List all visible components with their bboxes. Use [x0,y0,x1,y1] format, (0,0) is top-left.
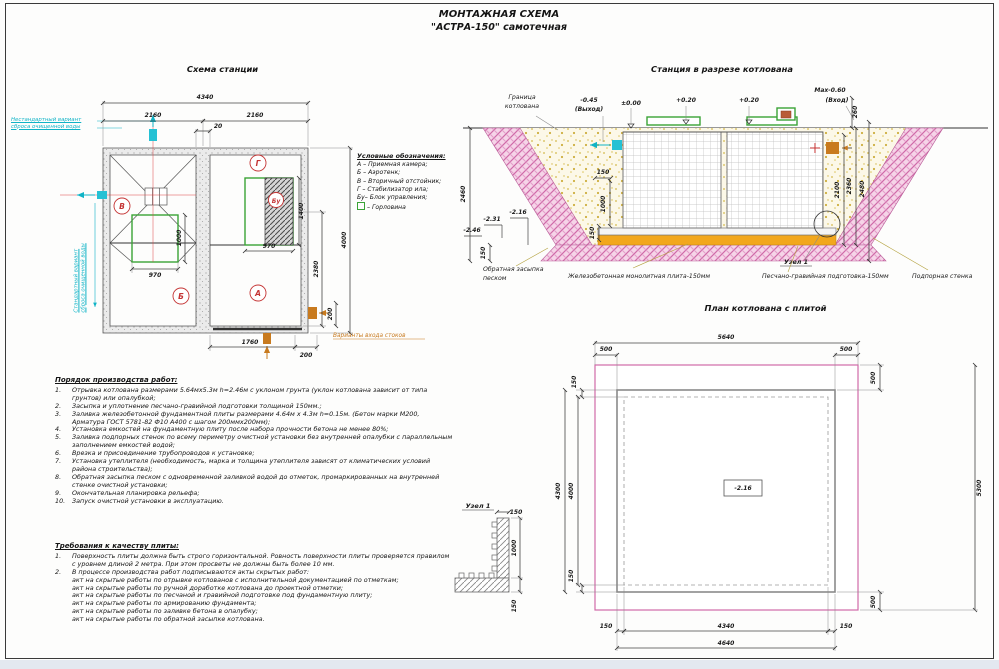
vent-block [781,111,791,118]
dim-2100: 2100 [834,182,841,199]
mark-m246: -2.46 [463,227,480,234]
list-item: 3.Заливка железобетонной фундаментной пл… [55,411,453,427]
dim-4340-b: 4340 [718,623,735,630]
station-scheme-heading: Схема станции [130,64,315,74]
pit-boundary-label-1: Граница [508,94,535,101]
item-text: Обратная засыпка песком с одновременной … [72,474,453,490]
label-chamber-a: А [254,289,261,298]
dim-200-right: 200 [327,308,334,321]
quality-requirements: Требования к качеству плиты: 1.Поверхнос… [55,543,453,624]
outlet-pipe [612,140,622,150]
station-scheme-drawing: В Б Г А Бу 4340 2160 2160 20 970 1000 97… [0,85,450,380]
label-chamber-v: В [119,202,125,211]
slab-label: Железобетонная монолитная плита-150мм [567,272,710,280]
dim-1000: 1000 [176,230,183,247]
pit-plan-drawing: -2.16 5640 500 500 150 500 4300 4000 150… [548,318,998,668]
dim-4000: 4000 [341,232,348,249]
mark-max: Max-0.60 [814,87,845,94]
item-text: Отрывка котлована размерами 5.64мх5.3м h… [72,387,453,403]
retaining-wall-bottom [541,245,886,261]
retaining-wall-label: Подпорная стенка [912,273,973,280]
dim-150c: 150 [480,247,487,260]
covers [647,108,797,125]
item-number: 7. [55,458,72,474]
dim-260: 260 [852,106,859,119]
plan-heading: План котлована с плитой [648,303,883,313]
outlet-stub-top [149,129,157,141]
work-order-list: Порядок производства работ: 1.Отрывка ко… [55,377,453,506]
dim-2480: 2480 [859,181,866,198]
item-number: 5. [55,434,72,450]
list-item: 7.Установка утеплителя (необходимость, м… [55,458,453,474]
item-number: 1. [55,553,72,569]
dim-150-lb: 150 [568,570,575,583]
concrete-slab [598,228,836,235]
label-control-unit: Бу [272,198,282,205]
sheet-title-line2: "АСТРА-150" самотечная [299,22,699,33]
quality-heading: Требования к качеству плиты: [55,543,453,551]
depth-box: -2.16 [724,480,762,496]
node1-keys [459,522,497,578]
bed-label: Песчано-гравийная подготовка-150мм [762,273,889,280]
item-number: 10. [55,498,72,506]
plan-depth-mark: -2.16 [734,485,751,492]
dim-4340: 4340 [197,94,214,101]
dim-150-br: 150 [840,623,853,630]
node1-slab [455,578,509,592]
item-text: Запуск очистной установки в эксплуатацию… [72,498,453,506]
mark-out: -0.45 [580,97,597,104]
item-number: 8. [55,474,72,490]
dim-150-lt: 150 [571,376,578,389]
dim-2160-right: 2160 [247,112,264,119]
dim-970-right: 970 [263,243,276,250]
dim-4000: 4000 [568,483,575,500]
dim-2460: 2460 [460,186,467,203]
dim-500-tr: 500 [840,346,853,353]
dim-2360: 2360 [846,178,853,195]
dim-1400: 1400 [298,203,305,220]
dim-1760: 1760 [242,339,259,346]
sheet-title-line1: МОНТАЖНАЯ СХЕМА [299,9,699,20]
section-heading: Станция в разрезе котлована [597,64,847,74]
dim-5300: 5300 [976,480,983,497]
list-item: 1.Отрывка котлована размерами 5.64мх5.3м… [55,387,453,403]
mark-m216: -2.16 [509,209,526,216]
dim-5640: 5640 [718,334,735,341]
dim-200-bottom: 200 [300,352,313,359]
inlet-stub-right [308,307,317,319]
node1-dim-1000: 1000 [511,540,518,557]
node1-dim-150t: 150 [510,509,523,516]
node1-dim-150b: 150 [511,600,518,613]
backfill-label-2: песком [483,275,507,282]
list-item: 10.Запуск очистной установки в эксплуата… [55,498,453,506]
dim-20: 20 [214,123,222,130]
mark-p20a: +0.20 [676,97,696,104]
dim-150a: 150 [597,169,610,176]
item-text: Заливка железобетонной фундаментной плит… [72,411,453,427]
item-number: 3. [55,411,72,427]
mark-in: (Вход) [826,97,849,104]
mark-p20b: +0.20 [739,97,759,104]
dim-500-rt: 500 [870,372,877,385]
item-text: Установка утеплителя (необходимость, мар… [72,458,453,474]
node1-heading: Узел 1 [466,502,491,510]
mark-zero: ±0.00 [621,100,641,107]
node1-wall [497,518,509,578]
list-item: 5.Заливка подпорных стенок по всему пери… [55,434,453,450]
outlet-stub-left [97,191,107,199]
dim-150-bl: 150 [600,623,613,630]
inlet-stub-bottom [263,333,271,344]
backfill-label-1: Обратная засыпка [483,265,544,273]
pit-boundary-label-2: котлована [505,103,539,110]
work-order-heading: Порядок производства работ: [55,377,453,385]
control-unit-hatch [265,178,293,245]
item-number: 1. [55,387,72,403]
item-number: 2. [55,569,72,577]
dim-970-left: 970 [149,272,162,279]
station-dimensions: 4340 2160 2160 20 970 1000 970 1400 2380… [103,94,353,359]
act-item: акт на скрытые работы по обратной засыпк… [72,616,453,624]
dim-4640: 4640 [718,640,735,647]
dim-2380: 2380 [313,261,320,278]
dim-500-tl: 500 [600,346,613,353]
mark-m231: -2.31 [483,216,500,223]
dim-500-rb: 500 [870,596,877,609]
dim-2160-left: 2160 [145,112,162,119]
list-item: 8.Обратная засыпка песком с одновременно… [55,474,453,490]
inlet-pipe [826,142,839,154]
list-item: 1.Поверхность плиты должна быть строго г… [55,553,453,569]
dim-1000: 1000 [600,196,607,213]
mark-out2: (Выход) [575,106,604,113]
dim-150b: 150 [589,227,596,240]
sand-gravel-bed [598,235,836,245]
label-chamber-b: Б [178,292,184,301]
dim-4300: 4300 [555,483,562,500]
pit-section-drawing: 2460 150 1000 150 150 2100 2360 2480 260… [458,78,995,300]
item-text: Поверхность плиты должна быть строго гор… [72,553,453,569]
inlet-variants-note: Варианты входа стоков [333,333,406,339]
item-text: Заливка подпорных стенок по всему периме… [72,434,453,450]
node-ref-label: Узел 1 [784,259,808,266]
acts-list: акт на скрытые работы по отрывке котлова… [72,577,453,624]
